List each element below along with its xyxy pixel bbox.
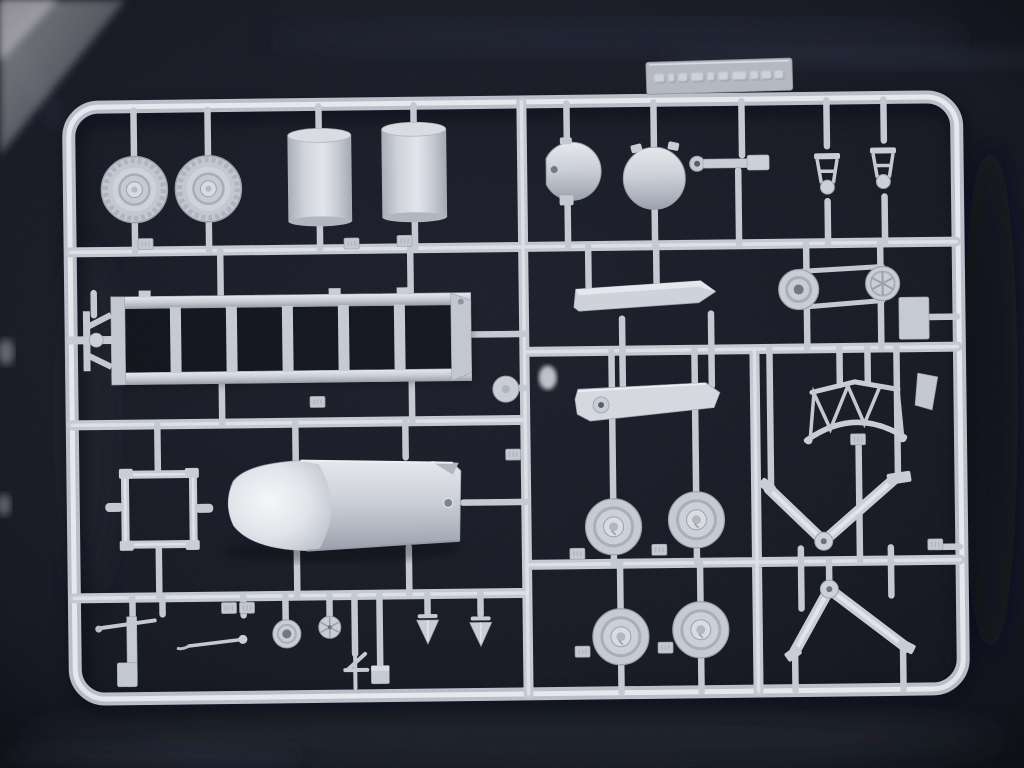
photo-canvas — [0, 0, 1024, 768]
film-grain-overlay — [0, 0, 1024, 768]
